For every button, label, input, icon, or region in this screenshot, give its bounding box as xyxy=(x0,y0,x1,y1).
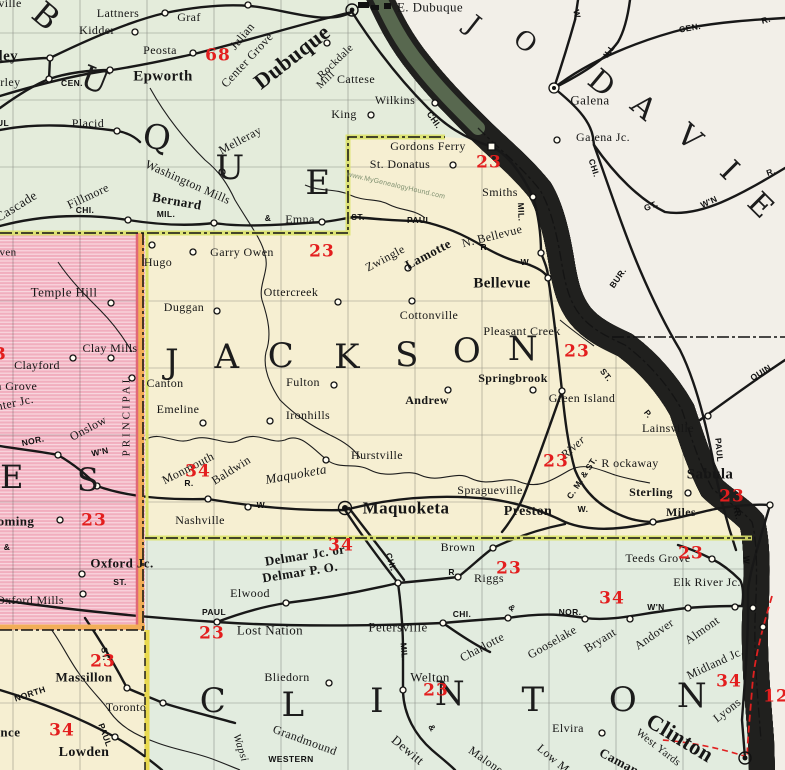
place-label-graf: Graf xyxy=(177,11,201,23)
route-number-68: 68 xyxy=(205,48,231,65)
place-label-lost-nation: Lost Nation xyxy=(237,624,303,637)
route-number-23: 23 xyxy=(678,546,704,563)
place-label-wyoming: Wyoming xyxy=(0,515,34,528)
county-name-dubuque-letter: Q xyxy=(141,119,174,157)
railroad-label: CHI. xyxy=(76,206,95,215)
place-label-elvira: Elvira xyxy=(552,722,584,734)
place-label-cottonville: Cottonville xyxy=(400,309,458,321)
route-number-23: 23 xyxy=(199,626,225,643)
place-label-pleasant-creek: Pleasant Creek xyxy=(483,325,560,337)
route-number-fragment: 12 xyxy=(763,689,785,706)
place-label-nashville: Nashville xyxy=(175,514,225,526)
place-label-petersville: Petersville xyxy=(368,621,427,634)
railroad-label: W xyxy=(742,556,751,564)
place-label-fragment: ville xyxy=(0,0,22,9)
railroad-label: PAUL xyxy=(714,438,725,463)
place-label-scotch-grove: Scotch Grove xyxy=(0,380,37,392)
map-artwork xyxy=(0,0,785,770)
place-label-gordons-ferry: Gordons Ferry xyxy=(390,140,466,152)
place-label-ottercreek: Ottercreek xyxy=(264,286,319,298)
route-number-23: 23 xyxy=(81,513,107,530)
place-label-peosta: Peosta xyxy=(143,44,177,56)
railroad-label: R. xyxy=(732,507,742,518)
route-number-23: 23 xyxy=(719,489,745,506)
railroad-label: R. xyxy=(760,15,771,26)
place-label-toronto: Toronto xyxy=(106,701,147,713)
place-label-st-donatus: St. Donatus xyxy=(370,158,430,170)
place-label-lainsville: Lainsville xyxy=(642,422,694,434)
county-name-clinton-letter: O xyxy=(609,683,637,717)
railroad-label: W. xyxy=(572,9,583,21)
railroad-label: PAUL xyxy=(407,216,431,225)
place-label-rockaway: R ockaway xyxy=(601,457,658,469)
route-number-34: 34 xyxy=(599,591,625,608)
route-number-34: 34 xyxy=(185,464,211,481)
place-label-east-dubuque: E. Dubuque xyxy=(397,1,463,14)
route-number-34: 34 xyxy=(49,723,75,740)
county-name-clinton-letter: N xyxy=(677,679,707,713)
place-label-galena: Galena xyxy=(570,94,609,107)
railroad-label: & xyxy=(4,543,11,552)
place-label-duggan: Duggan xyxy=(164,301,204,313)
place-label-fulton: Fulton xyxy=(286,376,320,388)
place-label-wilkins: Wilkins xyxy=(375,94,415,106)
railroad-label: W'N xyxy=(647,603,664,612)
railroad-label: W. xyxy=(257,501,268,510)
county-name-jackson-letter: O xyxy=(453,334,481,368)
railroad-label: W. xyxy=(578,505,589,514)
place-label-sterling: Sterling xyxy=(629,486,673,498)
place-label-andrew: Andrew xyxy=(405,394,449,406)
county-name-jones-letter: S xyxy=(77,464,99,496)
route-number-23: 23 xyxy=(476,155,502,172)
route-number-23: 23 xyxy=(423,683,449,700)
principal-meridian-label: PRINCIPAL xyxy=(122,374,133,457)
railroad-label: CEN. xyxy=(61,79,83,88)
place-label-oxford-jc: Oxford Jc. xyxy=(90,557,153,570)
railroad-label: MIL. xyxy=(516,203,525,222)
place-label-placid: Placid xyxy=(72,117,104,129)
place-label-lattners: Lattners xyxy=(97,7,140,19)
route-number-34: 34 xyxy=(328,538,354,555)
place-label-hugo: Hugo xyxy=(144,256,172,268)
place-label-miles: Miles xyxy=(666,506,696,518)
railroad-label: MIL. xyxy=(399,642,409,661)
railroad-label: CHI. xyxy=(453,610,472,619)
county-name-clinton-letter: C xyxy=(200,684,226,718)
place-label-emna: Emna xyxy=(285,213,315,225)
railroad-label: NOR. xyxy=(559,608,582,617)
place-label-farley-2: Farley xyxy=(0,76,21,88)
place-label-clarence: Clarence xyxy=(0,726,20,739)
route-number-23: 23 xyxy=(564,344,590,361)
railroad-label: PAUL xyxy=(0,119,9,128)
place-label-green-island: Green Island xyxy=(549,392,615,404)
route-number-34: 34 xyxy=(716,674,742,691)
place-label-canton: Canton xyxy=(146,377,183,389)
place-label-garry-owen: Garry Owen xyxy=(210,246,274,258)
place-label-kidder: Kidder xyxy=(79,24,115,36)
county-name-clinton-letter: T xyxy=(521,683,544,717)
railroad-label: & xyxy=(265,214,272,223)
place-label-bellevue: Bellevue xyxy=(473,277,530,292)
county-name-jackson-letter: S xyxy=(395,338,419,372)
railroad-label: PAUL xyxy=(202,608,226,617)
place-label-fragment: ven xyxy=(0,248,17,259)
railroad-label: WESTERN xyxy=(268,755,313,764)
county-name-jones-letter: E xyxy=(0,461,24,493)
place-label-brown: Brown xyxy=(441,541,476,553)
place-label-king: King xyxy=(331,108,357,120)
place-label-ironhills: Ironhills xyxy=(286,409,330,421)
place-label-bliedorn: Bliedorn xyxy=(264,671,309,683)
place-label-emeline: Emeline xyxy=(157,403,200,415)
railroad-label: MIL. xyxy=(157,210,176,219)
county-map-image: J A C K S O N C L I N T O N B U Q U E E … xyxy=(0,0,785,770)
place-label-oxford-mills: Oxford Mills xyxy=(0,594,64,606)
place-label-spragueville: Spragueville xyxy=(457,484,522,496)
place-label-elwood: Elwood xyxy=(230,587,270,599)
railroad-label: ST. xyxy=(113,578,126,587)
county-name-jackson-letter: C xyxy=(268,339,294,373)
railroad-label: W. xyxy=(521,258,532,267)
route-number-23: 23 xyxy=(90,654,116,671)
county-name-dubuque-letter: U xyxy=(215,151,244,185)
place-label-maquoketa-city: Maquoketa xyxy=(363,500,450,517)
place-label-sabula: Sabula xyxy=(687,468,734,483)
place-label-temple-hill: Temple Hill xyxy=(31,286,98,299)
railroad-label: ST. xyxy=(351,213,364,222)
county-name-clinton-letter: I xyxy=(370,684,384,718)
place-label-elk-river-jc: Elk River Jc. xyxy=(673,576,741,588)
place-label-clay-mills: Clay Mills xyxy=(82,342,137,354)
county-name-jackson-letter: K xyxy=(334,340,360,374)
place-label-farley: Farley xyxy=(0,50,18,65)
county-name-jackson-letter: A xyxy=(215,340,240,374)
county-name-dubuque-letter: E xyxy=(305,166,330,200)
route-number-23: 23 xyxy=(309,244,335,261)
place-label-preston: Preston xyxy=(504,505,552,519)
route-number-23: 23 xyxy=(543,454,569,471)
place-label-epworth: Epworth xyxy=(133,70,192,85)
route-number-fragment: 23 xyxy=(0,347,7,364)
place-label-cattese: Cattese xyxy=(337,73,375,85)
place-label-clayford: Clayford xyxy=(14,359,60,371)
railroad-label: R. xyxy=(480,243,489,252)
place-label-springbrook: Springbrook xyxy=(478,372,548,384)
county-name-clinton-letter: L xyxy=(282,688,305,722)
railroad-label: R. xyxy=(448,568,457,577)
place-label-galena-jc: Galena Jc. xyxy=(576,131,630,143)
route-number-23: 23 xyxy=(496,561,522,578)
county-name-jackson-letter: J xyxy=(165,345,179,379)
place-label-massillon: Massillon xyxy=(55,671,112,684)
place-label-lowden: Lowden xyxy=(59,746,110,760)
place-label-smiths: Smiths xyxy=(482,186,518,198)
place-label-hurstville: Hurstville xyxy=(351,449,403,461)
